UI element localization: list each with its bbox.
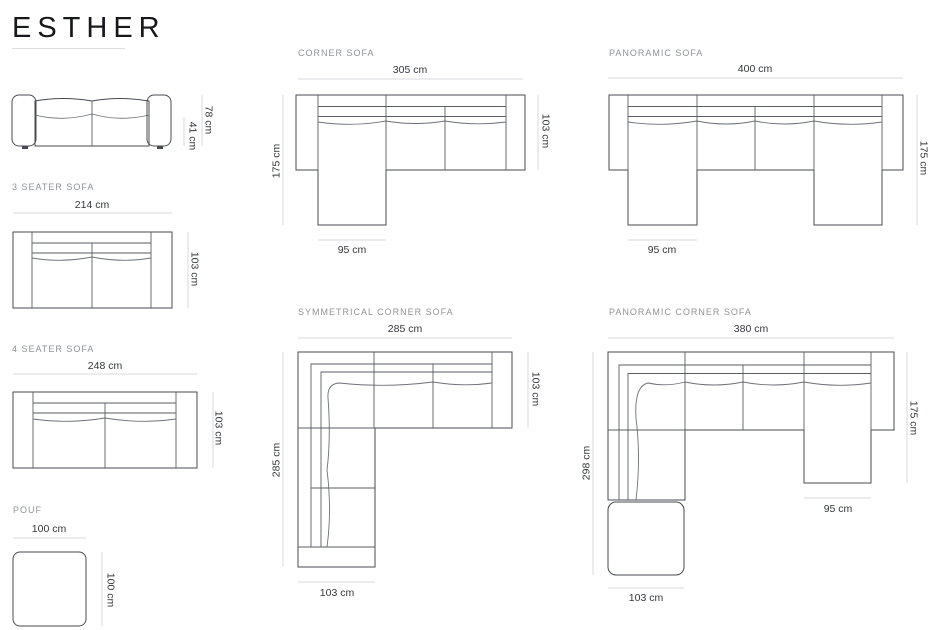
dim-total-height: 78 cm [203, 106, 215, 135]
pouf-outline [13, 552, 86, 626]
diagram-pouf: POUF 100 cm 100 cm [13, 505, 117, 626]
dim-chaise-width: 95 cm [824, 503, 853, 515]
dim-width: 100 cm [32, 523, 67, 535]
sofa-front-right-arm [147, 95, 171, 146]
diagram-symmetrical-corner-sofa: SYMMETRICAL CORNER SOFA 285 cm 285 cm 10… [271, 307, 542, 599]
sofa-diagrams: 78 cm 41 cm 3 SEATER SOFA 214 cm 103 cm … [0, 0, 930, 630]
dim-leg-width: 103 cm [320, 587, 355, 599]
diagram-panoramic-corner-sofa: PANORAMIC CORNER SOFA 380 cm 298 cm 175 … [581, 307, 920, 604]
dim-left-depth: 298 cm [581, 446, 593, 481]
section-label: 3 SEATER SOFA [12, 182, 94, 192]
seat-curve [33, 418, 176, 421]
section-label: PANORAMIC SOFA [609, 48, 703, 58]
dim-width: 214 cm [75, 199, 110, 211]
dim-width: 285 cm [388, 323, 423, 335]
diagram-panoramic-sofa: PANORAMIC SOFA 400 cm 175 cm 95 cm [608, 48, 930, 256]
dim-width: 380 cm [734, 323, 769, 335]
back-line-1 [311, 364, 492, 547]
diagram-four-seater: 4 SEATER SOFA 248 cm 103 cm [12, 344, 225, 468]
sofa-front-right-foot [157, 146, 163, 149]
dim-seat-height: 41 cm [187, 122, 199, 151]
dim-width: 248 cm [88, 360, 123, 372]
dim-width: 305 cm [393, 64, 428, 76]
back-line-2 [321, 372, 492, 547]
section-label: CORNER SOFA [298, 48, 375, 58]
dim-width: 400 cm [738, 63, 773, 75]
panoramic-corner-outline [608, 352, 894, 500]
seat-curve [318, 121, 506, 124]
section-label: SYMMETRICAL CORNER SOFA [298, 307, 454, 317]
back-line-2 [628, 374, 871, 501]
dim-depth: 103 cm [213, 411, 225, 446]
section-label: PANORAMIC CORNER SOFA [609, 307, 752, 317]
dim-total-depth: 175 cm [271, 144, 283, 179]
sofa-front-left-arm [12, 95, 36, 146]
panoramic-sofa-outline [609, 95, 903, 225]
dim-depth: 103 cm [189, 252, 201, 287]
dim-chaise-width: 95 cm [338, 244, 367, 256]
corner-sofa-outline [296, 95, 525, 225]
diagram-sofa-front-view: 78 cm 41 cm [12, 95, 215, 151]
seat-curve [32, 257, 151, 260]
corner-pouf-module [608, 502, 684, 575]
diagram-corner-sofa: CORNER SOFA 305 cm 175 cm 103 cm 95 cm [271, 48, 552, 256]
seat-curve [327, 382, 492, 547]
dimension-spec-sheet: ESTHER 78 cm 41 cm 3 SEATER SOFA 214 cm [0, 0, 930, 630]
sofa-front-left-foot [22, 146, 28, 149]
dim-leg-width: 103 cm [629, 592, 664, 604]
diagram-three-seater: 3 SEATER SOFA 214 cm 103 cm [12, 182, 201, 308]
seat-curve [636, 382, 871, 500]
dim-right-depth: 175 cm [908, 401, 920, 436]
dim-chaise-width: 95 cm [648, 244, 677, 256]
section-label: 4 SEATER SOFA [12, 344, 94, 354]
dim-left-depth: 285 cm [271, 443, 283, 478]
dim-depth: 100 cm [105, 573, 117, 608]
dim-seat-depth: 103 cm [540, 114, 552, 149]
dim-total-depth: 175 cm [918, 141, 930, 176]
dim-seat-depth: 103 cm [530, 372, 542, 407]
section-label: POUF [13, 505, 42, 515]
